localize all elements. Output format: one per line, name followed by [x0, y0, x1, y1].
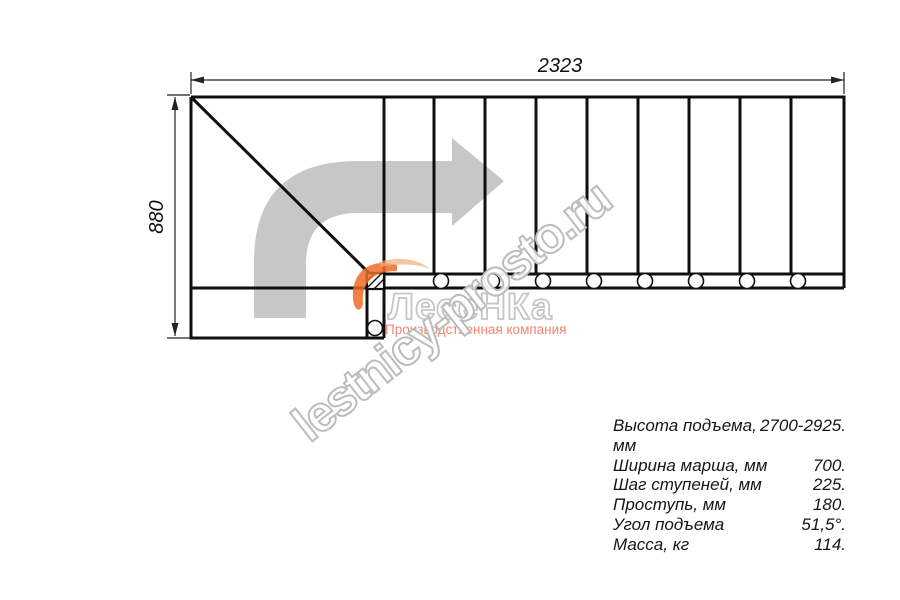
dim-arrowhead: [172, 323, 179, 336]
spec-label: Масса, кг: [613, 535, 689, 555]
spec-row: Проступь, мм 180.: [613, 495, 846, 515]
spec-value: 700.: [813, 456, 846, 476]
specs-table: Высота подъема, мм 2700-2925. Ширина мар…: [613, 416, 846, 555]
baluster-circle: [740, 274, 755, 289]
spec-label: Шаг ступеней, мм: [613, 475, 762, 495]
dim-arrowhead: [831, 77, 844, 84]
spec-value: 180.: [813, 495, 846, 515]
baluster-circle: [587, 274, 602, 289]
spec-value: 2700-2925.: [760, 416, 846, 456]
width-dimension-label: 2323: [537, 55, 583, 77]
dim-arrowhead: [172, 97, 179, 110]
dim-arrowhead: [191, 77, 204, 84]
spec-row: Ширина марша, мм 700.: [613, 456, 846, 476]
height-dimension-label: 880: [146, 200, 168, 233]
width-dimension: [191, 72, 844, 94]
spec-row: Высота подъема, мм 2700-2925.: [613, 416, 846, 456]
spec-label: Проступь, мм: [613, 495, 726, 515]
drawing-canvas: 2323 880 ЛесеНКа Производственная компан…: [0, 0, 900, 600]
spec-value: 114.: [814, 535, 846, 555]
baluster-circle: [791, 274, 806, 289]
spec-label: Угол подъема: [613, 515, 724, 535]
baluster-circle: [689, 274, 704, 289]
spec-label: Высота подъема, мм: [613, 416, 760, 456]
spec-value: 225.: [813, 475, 846, 495]
height-dimension: [167, 95, 190, 338]
spec-row: Шаг ступеней, мм 225.: [613, 475, 846, 495]
spec-label: Ширина марша, мм: [613, 456, 767, 476]
spec-row: Масса, кг 114.: [613, 535, 846, 555]
spec-value: 51,5°.: [801, 515, 846, 535]
spec-row: Угол подъема 51,5°.: [613, 515, 846, 535]
baluster-circle: [638, 274, 653, 289]
